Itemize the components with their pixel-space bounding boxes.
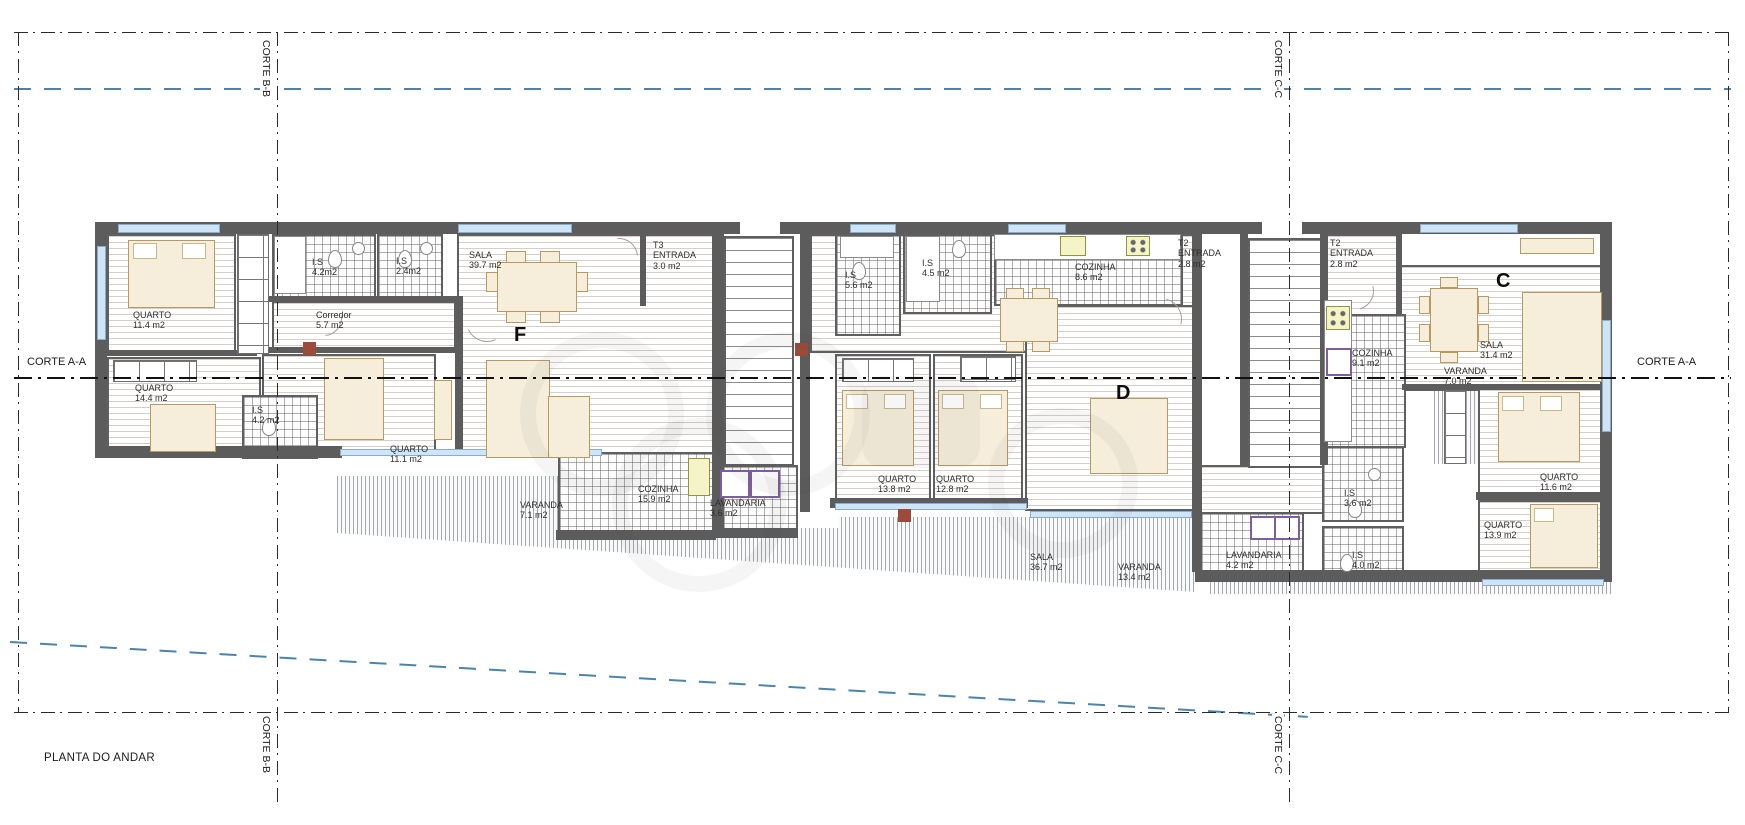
wall-accent (898, 509, 911, 522)
wall (107, 350, 257, 356)
pillow (942, 394, 964, 409)
room-label-quarto-13-8: QUARTO13.8 m2 (878, 474, 916, 495)
room-label-cozinha-d: COZINHA8.6 m2 (1075, 262, 1116, 283)
unit-letter-c: C (1496, 270, 1510, 293)
frame-line-top (14, 32, 1731, 33)
pillow (1540, 396, 1562, 411)
chair (540, 311, 560, 323)
hall-c (1200, 465, 1326, 514)
chair (486, 272, 498, 292)
chair (540, 251, 560, 263)
room-label-quarto-12-8: QUARTO12.8 m2 (936, 474, 974, 495)
room-label-is-2-4: I.S2.4m2 (396, 256, 421, 277)
corte-cc-bottom-label: CORTE C-C (1272, 714, 1284, 776)
frame-line-bottom (14, 712, 1731, 713)
sofa (1090, 398, 1168, 474)
room-label-entrada-d: T2ENTRADA2.8 m2 (1178, 238, 1221, 269)
room-label-is-4-5: I.S4.5 m2 (922, 258, 950, 279)
room-label-quarto-11-1: QUARTO11.1 m2 (390, 444, 428, 465)
sofa (486, 360, 550, 458)
toilet (952, 240, 966, 258)
room-label-quarto-11-4: QUARTO11.4 m2 (133, 310, 171, 331)
pillow (980, 394, 1002, 409)
bed (150, 404, 216, 452)
washer (1274, 516, 1300, 540)
sink (420, 242, 433, 255)
window (1030, 511, 1192, 518)
window (850, 224, 896, 233)
wall (455, 296, 463, 454)
section-line-cc (1289, 32, 1290, 804)
room-label-sala-c: SALA31.4 m2 (1480, 340, 1513, 361)
kitchen-sink (1060, 236, 1086, 256)
closet-column (1444, 390, 1466, 464)
room-label-varanda-d: VARANDA13.4 m2 (1118, 562, 1161, 583)
room-label-is-3-6: I.S3.6 m2 (1344, 488, 1372, 509)
room-is-3-6 (1322, 446, 1404, 522)
wall (1402, 384, 1612, 390)
chair (506, 251, 526, 263)
room-corredor (272, 301, 456, 353)
corte-bb-bottom-label: CORTE B-B (260, 714, 272, 775)
tv-sideboard (434, 380, 452, 440)
room-label-quarto-11-6: QUARTO11.6 m2 (1540, 472, 1578, 493)
closet-column (237, 234, 269, 354)
chair (1032, 288, 1050, 299)
dining-table (1000, 298, 1058, 342)
room-label-sala-f: SALA39.7 m2 (469, 250, 502, 271)
window (1008, 224, 1066, 233)
frame-line-left (18, 32, 19, 712)
chair (1006, 341, 1024, 352)
stairwell-right (1248, 238, 1324, 468)
pillow (1534, 508, 1554, 522)
wall (1240, 234, 1248, 465)
room-label-lavandaria-c: LAVANDARIA4.2 m2 (1226, 550, 1282, 571)
stove (1126, 236, 1150, 256)
window (1602, 320, 1611, 432)
kitchen-sink (1326, 348, 1352, 376)
chair (576, 272, 588, 292)
corte-bb-top-label: CORTE B-B (260, 38, 272, 99)
room-label-entrada-f: T3ENTRADA3.0 m2 (653, 240, 696, 271)
sofa-chaise (548, 396, 590, 458)
dining-table (1430, 288, 1478, 352)
bathtub (840, 236, 894, 258)
room-label-varanda-f: VARANDA7.1 m2 (520, 500, 563, 521)
section-line-aa (14, 377, 1731, 379)
chair (1440, 277, 1458, 288)
stove (1326, 306, 1350, 330)
wall (265, 296, 455, 302)
unit-letter-f: F (514, 324, 526, 347)
bed (324, 358, 384, 440)
pillow (133, 243, 157, 259)
sink (1368, 468, 1381, 481)
washer (1250, 516, 1276, 540)
room-label-is-4-0: I.S4.0 m2 (1352, 550, 1380, 571)
wall (265, 347, 455, 353)
wall (1476, 492, 1612, 500)
sideboard (1520, 238, 1594, 254)
floor-plan-sheet: CORTE A-A CORTE A-A CORTE B-B CORTE B-B … (0, 0, 1745, 825)
chair (1478, 296, 1489, 314)
window (1420, 224, 1518, 233)
room-label-cozinha-c: COZINHA9.1 m2 (1352, 348, 1393, 369)
room-label-entrada-c: T2ENTRADA2.8 m2 (1330, 238, 1373, 269)
washer (720, 470, 750, 498)
wall (95, 446, 342, 458)
pillow (846, 394, 868, 409)
chair (1032, 341, 1050, 352)
corte-cc-top-label: CORTE C-C (1272, 38, 1284, 100)
wall-accent (303, 342, 316, 355)
pillow (182, 243, 206, 259)
sheet-title: PLANTA DO ANDAR (44, 752, 155, 764)
window (835, 503, 1027, 510)
wall (640, 234, 646, 306)
washer (750, 470, 780, 498)
kitchen-counter (994, 234, 1181, 260)
room-label-sala-d: SALA36.7 m2 (1030, 552, 1063, 573)
room-label-corredor: Corredor5.7 m2 (316, 310, 352, 331)
kitchen-appliance (688, 458, 710, 496)
wall (714, 528, 798, 538)
wall (1192, 222, 1202, 572)
room-label-quarto-14-4: QUARTO14.4 m2 (135, 383, 173, 404)
chair (1006, 288, 1024, 299)
room-label-is-4-2-bottom: I.S4.2 m2 (252, 405, 280, 426)
sofa (1522, 292, 1602, 382)
wall (800, 222, 810, 512)
unit-letter-d: D (1116, 382, 1130, 405)
corte-aa-right-label: CORTE A-A (1634, 356, 1699, 368)
room-label-is-5-6: I.S5.6 m2 (845, 270, 873, 291)
room-label-quarto-13-9: QUARTO13.9 m2 (1484, 520, 1522, 541)
pillow (884, 394, 906, 409)
stairwell-left (724, 236, 794, 466)
chair (1419, 324, 1430, 342)
room-label-is-4-2-top: I.S4.2m2 (312, 257, 337, 278)
wall-accent (795, 343, 808, 356)
sink (352, 242, 365, 255)
pillow (1502, 396, 1524, 411)
corte-aa-left-label: CORTE A-A (24, 356, 89, 368)
chair (506, 311, 526, 323)
window (1482, 579, 1604, 586)
bathtub (274, 236, 306, 294)
wall (556, 530, 716, 540)
room-label-lavandaria-f: LAVANDARIA3.6 m2 (710, 498, 766, 519)
section-line-bb (277, 32, 278, 804)
wall (1396, 234, 1402, 314)
window (97, 246, 106, 340)
section-line-blue-bottom (10, 641, 1308, 718)
frame-line-right (1728, 32, 1729, 712)
chair (1419, 296, 1430, 314)
window (458, 224, 572, 233)
chair (1440, 352, 1458, 363)
dining-table (497, 262, 577, 312)
room-label-cozinha-f: COZINHA15.9 m2 (638, 484, 679, 505)
window (118, 224, 220, 233)
